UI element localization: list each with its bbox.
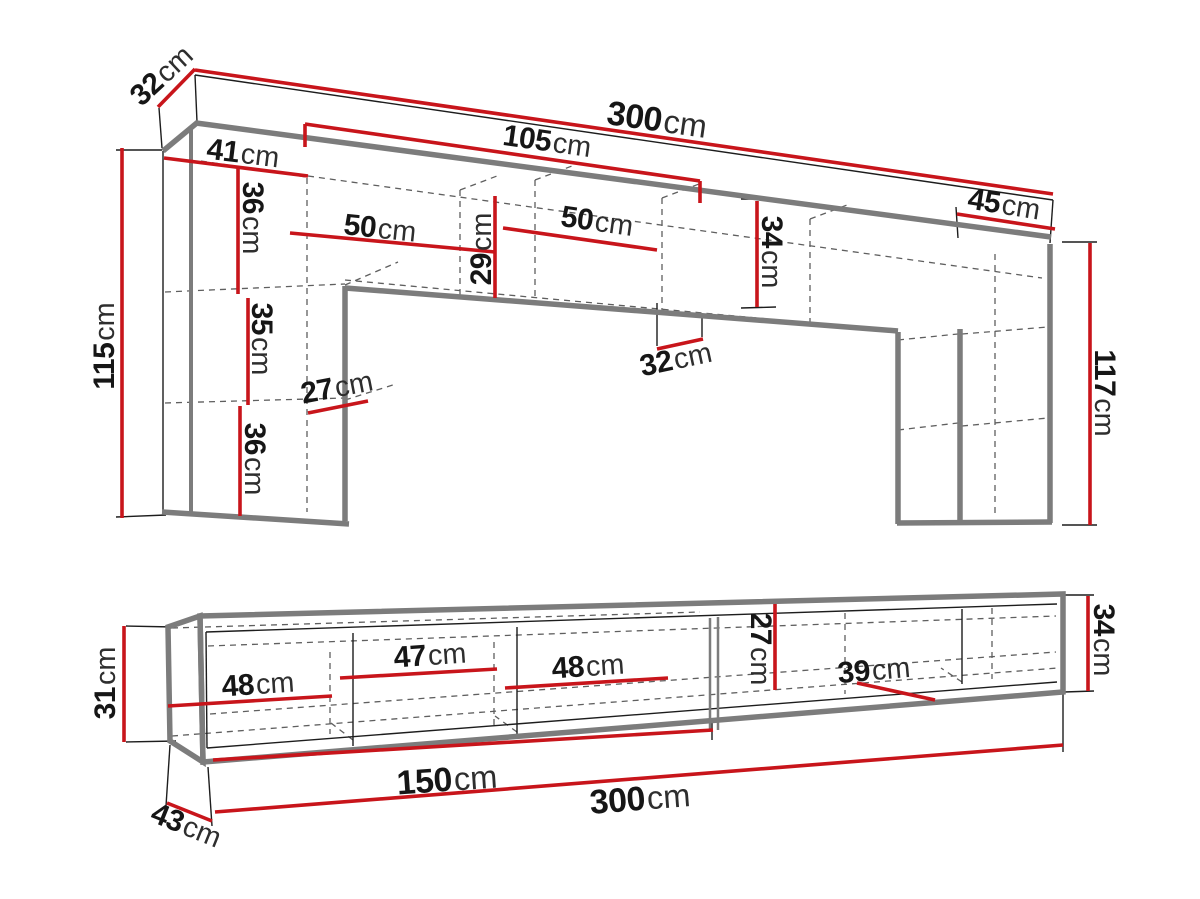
dim-upper-left-compartment-width: 50cm <box>342 210 418 247</box>
dim-upper-left-column-height: 115cm <box>90 302 120 389</box>
dim-upper-upper-shelf-height: 36cm <box>237 182 267 255</box>
dim-upper-bridge-inner-height: 29cm <box>467 213 497 286</box>
dim-lower-compartment-1-width: 48cm <box>221 667 296 702</box>
furniture-dimension-diagram: 32cm 300cm 105cm 41cm 36cm 50cm 29cm 50c… <box>0 0 1200 899</box>
dim-lower-inner-height: 27cm <box>745 613 775 686</box>
dim-lower-compartment-4-width: 39cm <box>836 653 911 689</box>
dim-upper-lower-shelf-height: 36cm <box>239 423 269 496</box>
dim-lower-half-width: 150cm <box>396 760 499 801</box>
dim-lower-compartment-2-width: 47cm <box>393 638 468 673</box>
dim-upper-right-column-height: 117cm <box>1089 349 1119 436</box>
dim-lower-left-height: 31cm <box>91 647 121 720</box>
dim-lower-compartment-3-width: 48cm <box>551 649 626 684</box>
dim-lower-total-width: 300cm <box>588 778 691 820</box>
dim-upper-bridge-height: 34cm <box>756 216 786 289</box>
furniture-line-art <box>0 0 1200 899</box>
dim-upper-middle-shelf-height: 35cm <box>246 303 276 376</box>
dim-lower-right-height: 34cm <box>1088 604 1118 677</box>
